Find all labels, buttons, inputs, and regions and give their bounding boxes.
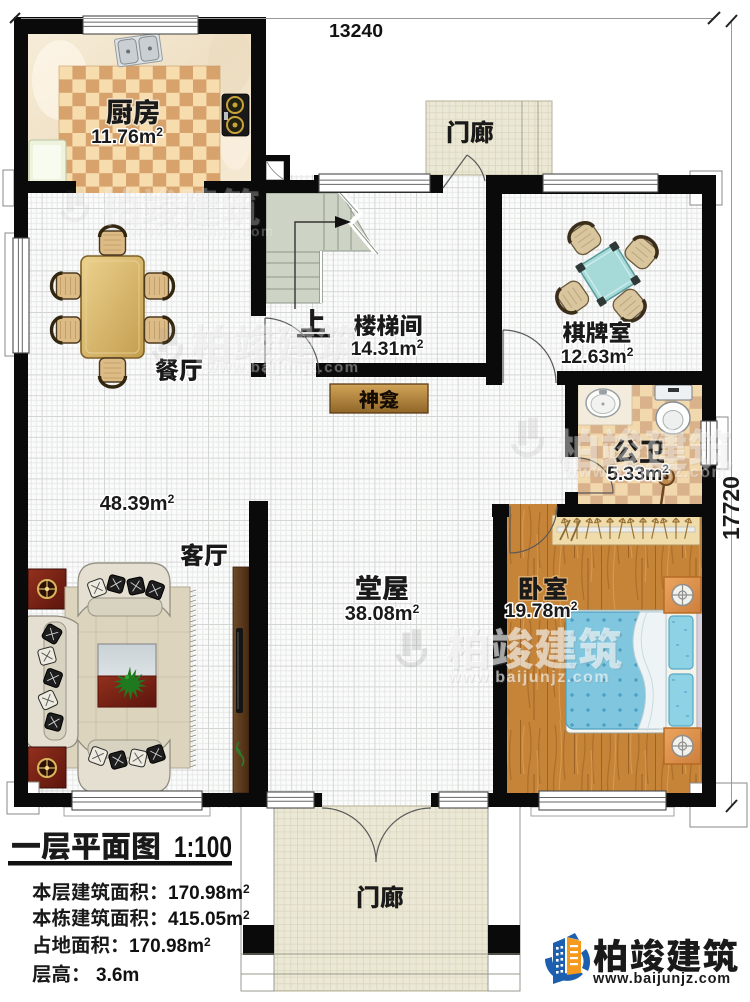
svg-text:170.98m2: 170.98m2 xyxy=(129,935,211,957)
svg-text:48.39m2: 48.39m2 xyxy=(100,492,175,515)
svg-text:38.08m2: 38.08m2 xyxy=(345,602,420,625)
svg-text:19.78m2: 19.78m2 xyxy=(505,599,578,622)
svg-text:12.63m2: 12.63m2 xyxy=(561,345,634,368)
svg-text:www.baijunjz.com: www.baijunjz.com xyxy=(564,464,727,481)
svg-text:www.baijunjz.com: www.baijunjz.com xyxy=(592,971,731,987)
svg-text:www.baijunjz.com: www.baijunjz.com xyxy=(205,359,359,376)
svg-text:415.05m2: 415.05m2 xyxy=(168,908,250,930)
svg-text:3.6m: 3.6m xyxy=(96,965,139,986)
svg-text:17720: 17720 xyxy=(718,476,744,540)
svg-text:1:100: 1:100 xyxy=(174,831,232,864)
svg-text:14.31m2: 14.31m2 xyxy=(351,337,424,360)
svg-text:www.baijunjz.com: www.baijunjz.com xyxy=(447,669,610,686)
svg-text:11.76m2: 11.76m2 xyxy=(91,125,163,148)
svg-text:170.98m2: 170.98m2 xyxy=(168,882,250,904)
svg-text:www.baijunjz.com: www.baijunjz.com xyxy=(129,223,275,239)
svg-text:13240: 13240 xyxy=(329,21,383,41)
